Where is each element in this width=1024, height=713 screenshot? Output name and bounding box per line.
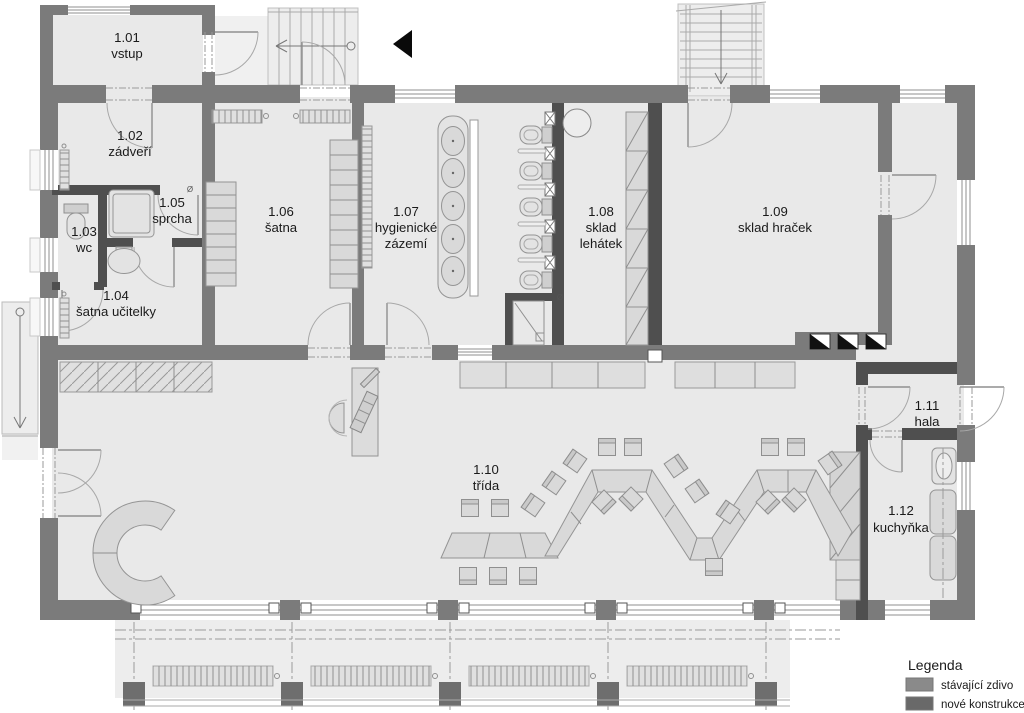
toilet-icon: [520, 271, 542, 289]
room-label-number: 1.11: [915, 398, 940, 413]
terrace-column: [597, 682, 619, 706]
section-marker-icon: [866, 334, 886, 349]
shower-icon: [109, 190, 154, 237]
stairs-top-center: [268, 8, 358, 85]
room-label-name: kuchyňka: [873, 520, 929, 535]
room-label-name: sprcha: [152, 211, 192, 226]
room-label-name: sklad hraček: [738, 220, 812, 235]
toilet-icon: [520, 126, 542, 144]
room-label-name: třída: [473, 478, 500, 493]
child-toilets: [518, 112, 555, 289]
room-label-name: hygienické: [375, 220, 437, 235]
legend-swatch-existing: [906, 678, 933, 691]
legend-swatch-new: [906, 697, 933, 710]
room-label-name: sklad: [586, 220, 617, 235]
legend-title: Legenda: [908, 657, 963, 673]
section-marker-icon: [810, 334, 830, 349]
washbasin-icon: [108, 249, 140, 274]
terrace-column: [281, 682, 303, 706]
legend: Legenda stávající zdivo nové konstrukce: [906, 657, 1024, 711]
stairs-top-right: [676, 2, 766, 96]
room-label-number: 1.07: [393, 204, 419, 219]
terrace-column: [439, 682, 461, 706]
floor-plan-page: 1.01 vstup 1.02 zádveří 1.03 wc 1.04 šat…: [0, 0, 1024, 713]
room-label-number: 1.04: [103, 288, 129, 303]
room-label-name: vstup: [111, 46, 143, 61]
room-label-number: 1.09: [762, 204, 788, 219]
room-label-number: 1.05: [159, 195, 185, 210]
toilet-icon: [520, 235, 542, 253]
column-circle: [563, 109, 591, 137]
diameter-symbol: Ø: [557, 293, 563, 302]
toilet-icon: [64, 204, 88, 213]
terrace-column: [123, 682, 145, 706]
kitchen-counter: [930, 448, 956, 598]
room-label-number: 1.10: [473, 462, 499, 477]
room-label-name: wc: [75, 240, 93, 255]
room-label-number: 1.01: [114, 30, 140, 45]
diameter-symbol: Ø: [187, 185, 193, 194]
floor-plan-drawing: 1.01 vstup 1.02 zádveří 1.03 wc 1.04 šat…: [0, 0, 1024, 713]
room-label-name: lehátek: [580, 236, 623, 251]
toilet-icon: [520, 162, 542, 180]
room-label-number: 1.08: [588, 204, 614, 219]
room-label-name: hala: [915, 414, 941, 429]
room-label-name: šatna: [265, 220, 298, 235]
room-label-number: 1.06: [268, 204, 294, 219]
terrace-column: [755, 682, 777, 706]
legend-label: stávající zdivo: [941, 680, 1013, 692]
section-marker-icon: [838, 334, 858, 349]
toilet-icon: [520, 198, 542, 216]
room-label-name: zázemí: [385, 236, 428, 251]
room-label-number: 1.02: [117, 128, 143, 143]
room-label-number: 1.03: [71, 224, 97, 239]
room-label-name: šatna učitelky: [76, 304, 156, 319]
room-label-name: zádveří: [108, 144, 152, 159]
entrance-marker-icon: [393, 30, 412, 58]
room-label-number: 1.12: [888, 503, 914, 518]
legend-label: nové konstrukce: [941, 699, 1024, 711]
washbasin-counter: [438, 116, 478, 298]
